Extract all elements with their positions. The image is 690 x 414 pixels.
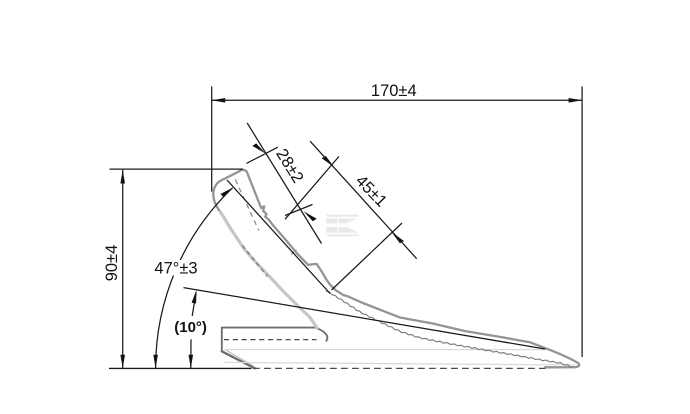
svg-text:170±4: 170±4 [371,82,417,100]
svg-text:47°±3: 47°±3 [154,259,197,277]
svg-text:(10°): (10°) [174,319,207,336]
svg-text:90±4: 90±4 [103,245,121,282]
